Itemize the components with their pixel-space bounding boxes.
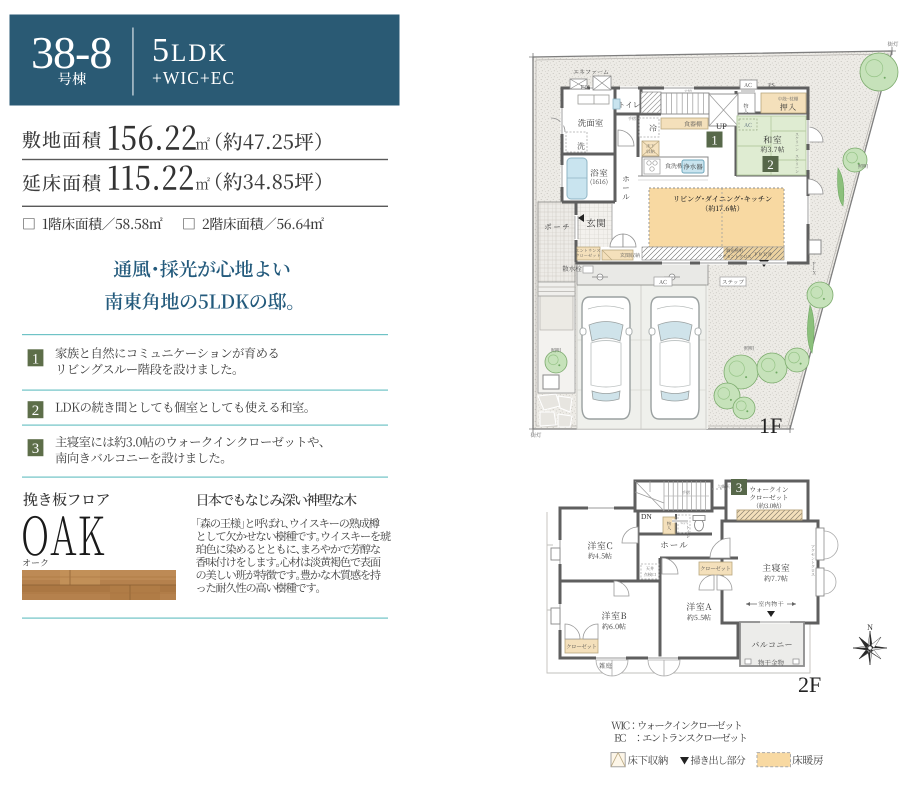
svg-text:UP: UP [716,121,727,131]
svg-text:3: 3 [32,441,40,457]
svg-text:N: N [867,623,873,632]
svg-text:1F: 1F [759,413,782,438]
svg-text:38-8: 38-8 [31,27,111,78]
svg-text:2: 2 [767,157,774,172]
svg-text:1: 1 [32,351,40,367]
svg-text:DN: DN [641,512,652,521]
svg-text:2F: 2F [798,672,821,697]
svg-text:1: 1 [711,133,718,148]
svg-text:+WIC+EC: +WIC+EC [152,68,235,88]
svg-text:LDK: LDK [171,40,228,67]
svg-text:2: 2 [32,403,40,419]
svg-text:3: 3 [736,480,743,495]
svg-text:5: 5 [152,32,169,69]
svg-text:FIX: FIX [581,85,590,91]
